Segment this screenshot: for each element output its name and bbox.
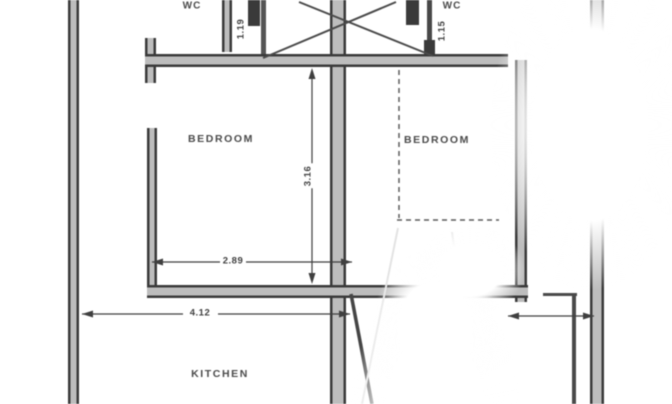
- dimension-text-bedroom-depth: 3.16: [303, 164, 314, 189]
- room-label-bedroom-left: BEDROOM: [188, 133, 254, 145]
- dimension-text-wc-right: 1.15: [437, 19, 448, 44]
- dimension-arrow: [152, 259, 163, 266]
- dimension-arrow: [82, 311, 93, 318]
- dimension-text-wc-left: 1.19: [236, 17, 247, 42]
- dimension-arrow: [583, 313, 594, 320]
- room-label-kitchen: KITCHEN: [191, 368, 249, 380]
- stair-diagonal-line: [299, 2, 433, 56]
- room-label-bedroom-right: BEDROOM: [404, 134, 470, 146]
- dimension-arrow: [339, 311, 350, 318]
- dimension-text-bedroom-width: 2.89: [221, 256, 246, 267]
- dimension-arrow: [309, 273, 316, 284]
- stair-diagonal-line: [263, 2, 396, 58]
- floor-plan: WC WC BEDROOM BEDROOM KITCHEN 1.19 1.15 …: [0, 0, 672, 404]
- room-label-wc-left: WC: [183, 1, 202, 12]
- dimension-arrow: [341, 259, 352, 266]
- floor-plan-screenshot: WC WC BEDROOM BEDROOM KITCHEN 1.19 1.15 …: [0, 0, 672, 404]
- dimension-arrow: [309, 68, 316, 79]
- white-wash-bottom-flare-upper: [372, 248, 498, 404]
- room-label-wc-right: WC: [443, 1, 462, 12]
- dimension-text-kitchen-width: 4.12: [188, 308, 213, 319]
